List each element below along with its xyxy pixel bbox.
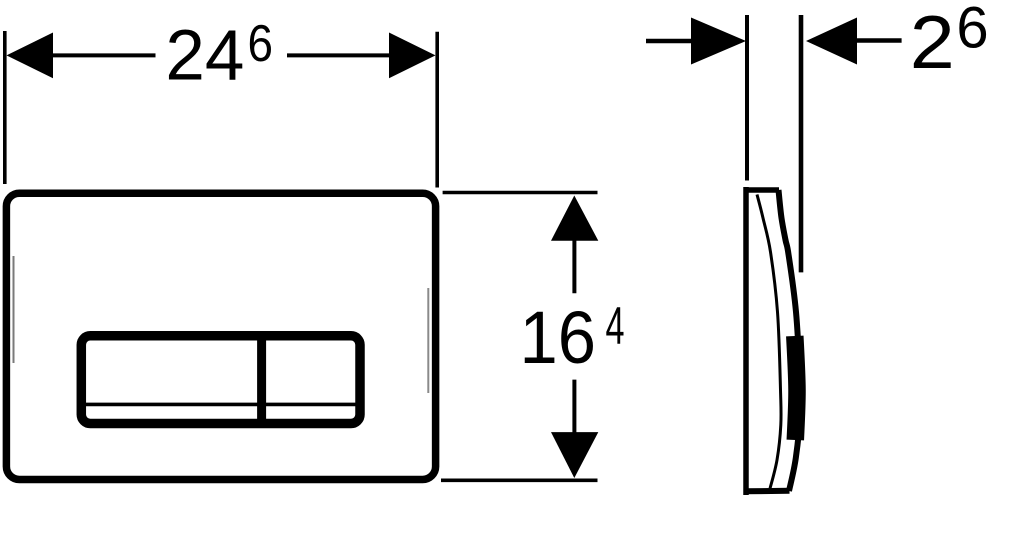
svg-text:2: 2 (910, 0, 955, 84)
svg-text:6: 6 (248, 15, 274, 73)
svg-text:16: 16 (520, 296, 597, 379)
svg-text:4: 4 (606, 297, 625, 356)
svg-text:6: 6 (956, 0, 988, 61)
svg-text:24: 24 (165, 16, 244, 95)
